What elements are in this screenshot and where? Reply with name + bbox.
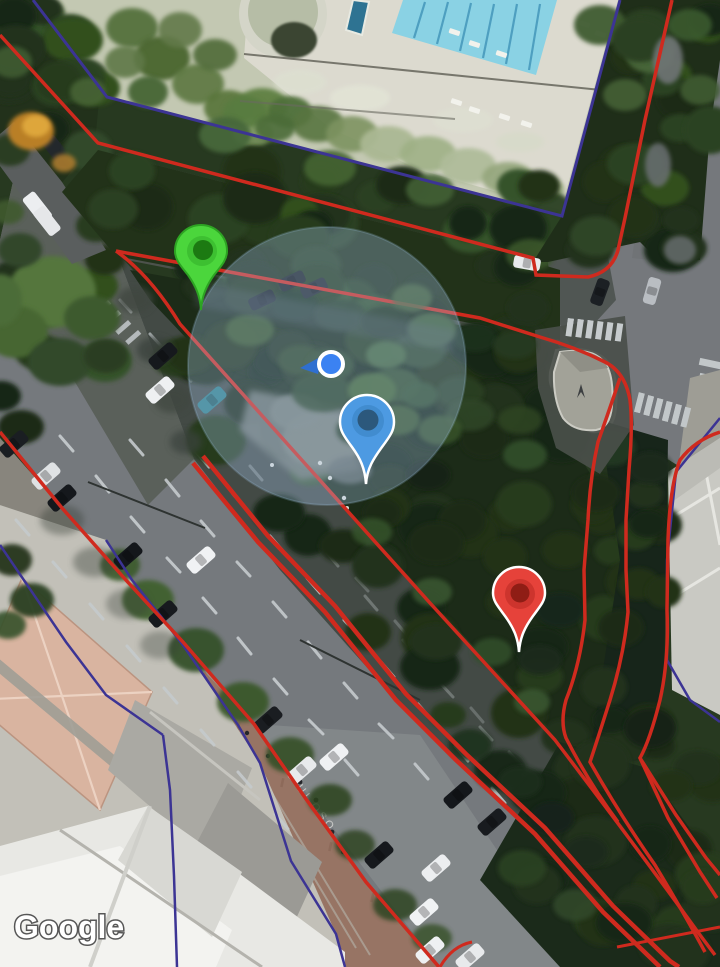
svg-text:Google: Google <box>14 909 124 945</box>
